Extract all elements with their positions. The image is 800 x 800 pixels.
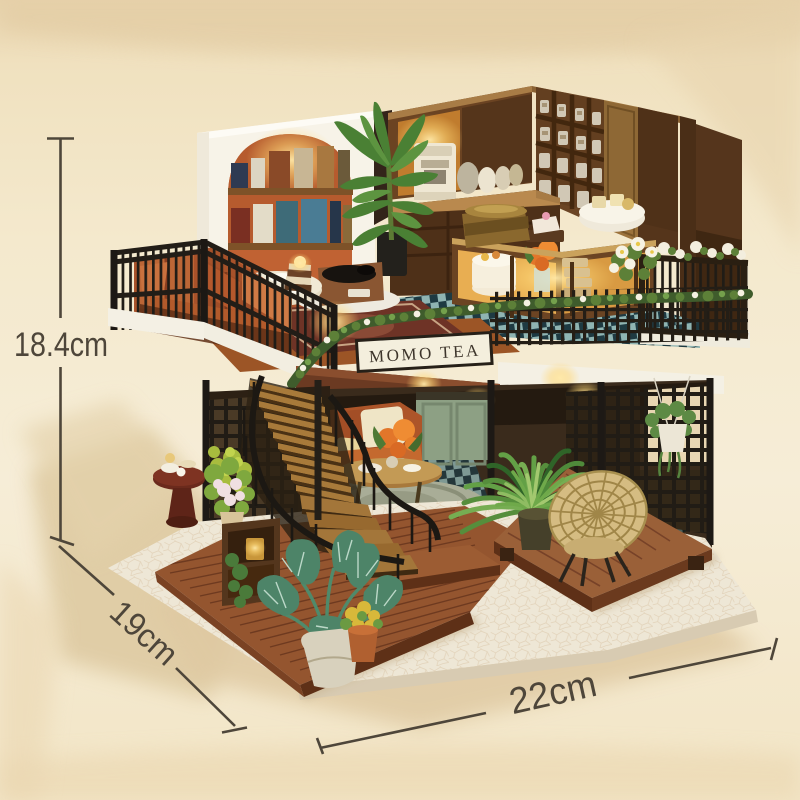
svg-text:18.4cm: 18.4cm xyxy=(14,326,108,364)
